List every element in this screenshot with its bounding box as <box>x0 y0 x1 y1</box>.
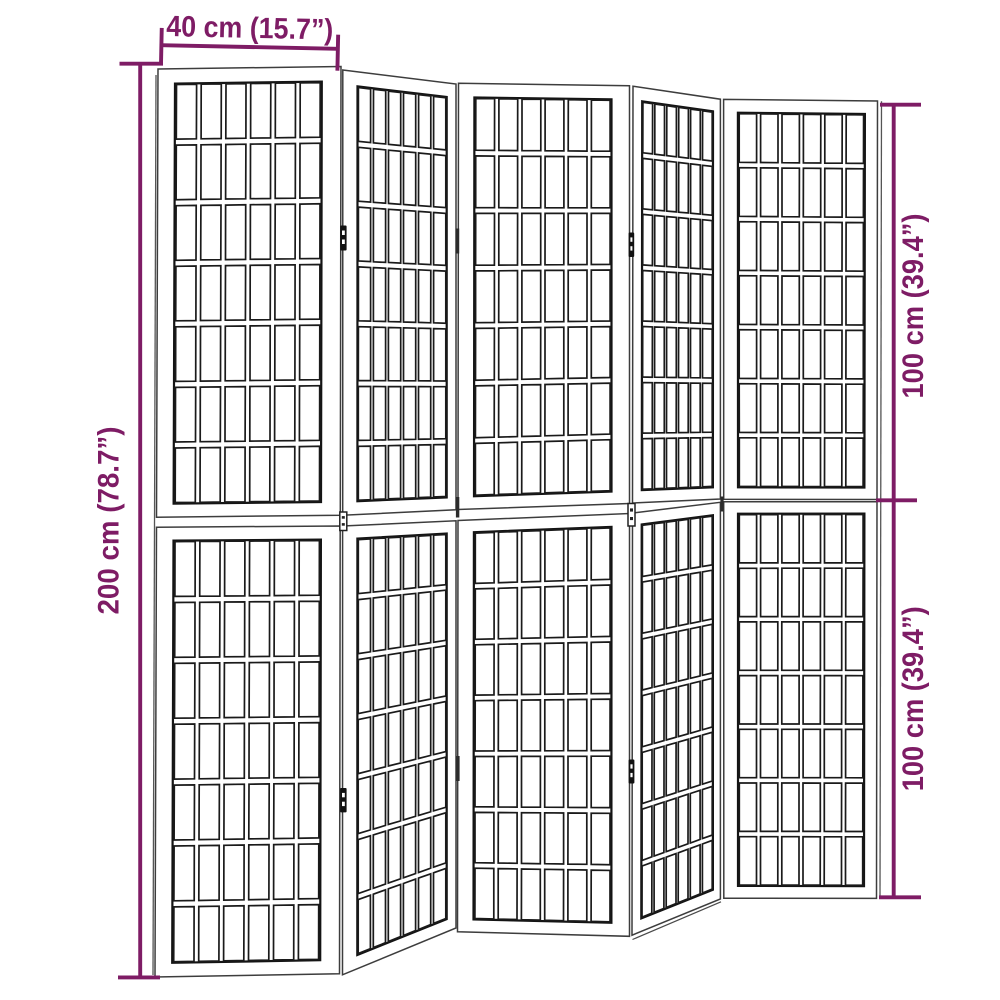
svg-text:200 cm (78.7”): 200 cm (78.7”) <box>93 427 126 615</box>
svg-text:40 cm (15.7”): 40 cm (15.7”) <box>166 10 334 46</box>
svg-text:100 cm (39.4”): 100 cm (39.4”) <box>897 606 930 791</box>
svg-text:100 cm (39.4”): 100 cm (39.4”) <box>897 214 930 399</box>
